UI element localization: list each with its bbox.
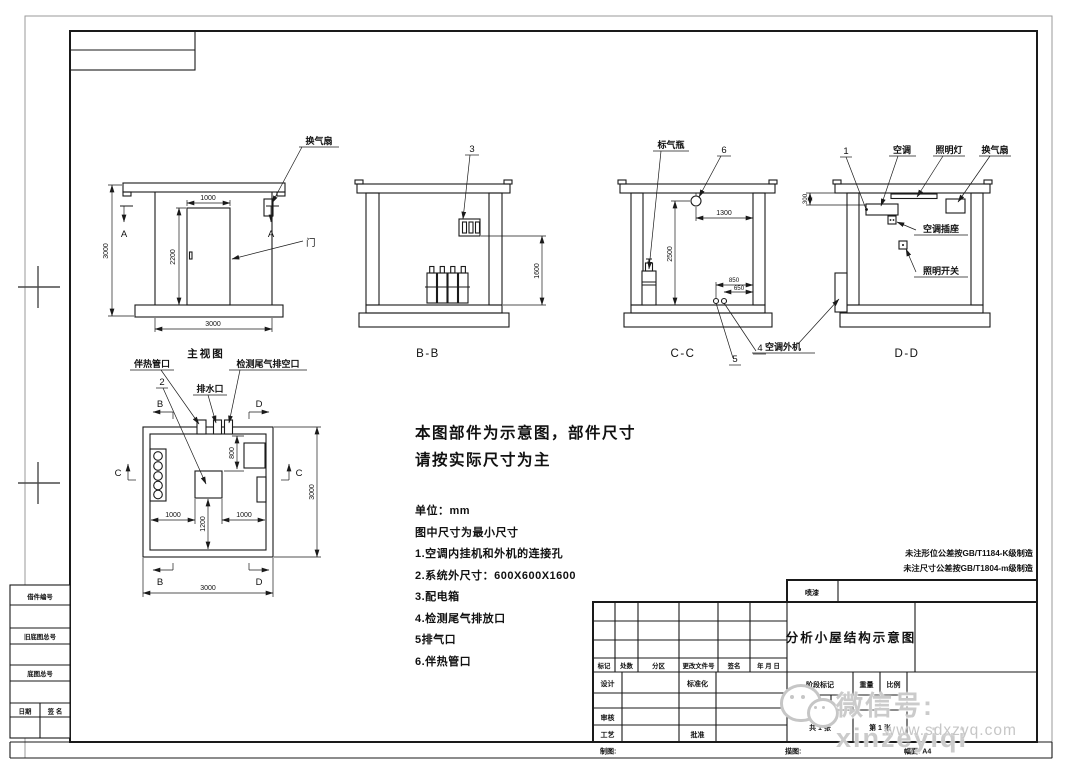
door-handle [190,252,193,259]
ac-socket [888,216,896,224]
mark-c-left: C [115,468,122,479]
door-label: 门 [306,237,316,249]
section-mark-a-left: A [121,229,128,240]
dim-1000-right: 1000 [236,512,252,519]
vent-fan [946,199,965,213]
heat-pipe-port [197,420,206,434]
floor-port [714,299,719,304]
trace-label: 描图: [785,747,801,756]
gas-cylinders [425,267,470,304]
wall-box [257,477,266,502]
dim-1600: 1600 [534,263,541,279]
audit-label: 审核 [601,713,615,722]
section-dd: 1 空调 照明灯 换气扇 300 空调插座 照明开关 空调外机 D-D [752,144,1011,360]
weight-label: 重量 [860,680,874,689]
base-no-label: 底图总号 [27,669,53,678]
exhaust-label: 检测尾气排空口 [236,358,299,369]
switch-label: 照明开关 [923,265,959,276]
note-headline-1: 本图部件为示意图，部件尺寸 [415,420,705,447]
plan-view: 伴热管口 2 排水口 检测尾气排空口 B D C C B D 800 1 [115,358,321,597]
mark-c-right: C [296,468,303,479]
format-label: 幅面: A4 [904,747,931,756]
note-item-2: 2.系统外尺寸：600X600X1600 [415,566,705,588]
drain-port [214,420,222,434]
mark-b-top: B [157,399,163,410]
borrow-no-label: 借件编号 [26,592,53,601]
dim-3000-right: 3000 [309,484,316,500]
craft-label: 工艺 [601,730,615,739]
dim-650: 650 [734,285,745,292]
approve-label: 批准 [691,730,705,739]
tolerance-line-1: 未注形位公差按GB/T1184-K级制造 [904,548,1034,558]
notes-block: 本图部件为示意图，部件尺寸 请按实际尺寸为主 单位：mm 图中尺寸为最小尺寸 1… [415,420,705,673]
dim-1300: 1300 [716,210,732,217]
outdoor-unit-label: 空调外机 [765,341,801,352]
note-item-5: 5排气口 [415,630,705,652]
scale-label: 比例 [887,680,901,689]
tolerance-line-2: 未注尺寸公差按GB/T1804-m级制造 [902,563,1033,573]
dim-800: 800 [229,447,236,459]
note-item-4: 4.检测尾气排放口 [415,609,705,631]
system-cabinet [195,471,222,498]
draft-label: 制图: [600,747,616,756]
sheet-number: 第 1 张 [869,723,892,732]
note-item-1: 1.空调内挂机和外机的连接孔 [415,544,705,566]
ceiling-port [691,196,701,206]
dim-300: 300 [802,193,809,204]
drawing-sheet: 1000 2200 3000 3000 A A 换气扇 门 主视图 [0,0,1070,766]
mark-b-bottom: B [157,577,163,588]
section-cc: 标气瓶 6 1300 2500 850 650 5 4 C-C [618,139,777,365]
dim-2500: 2500 [667,246,674,262]
callout-3: 3 [469,144,474,155]
ac-indoor-unit [866,204,898,215]
design-label: 设计 [601,679,615,688]
rev-header-sign: 签名 [727,661,741,670]
tolerance-notes: 未注形位公差按GB/T1184-K级制造 未注尺寸公差按GB/T1804-m级制… [902,548,1033,573]
heat-port-label: 伴热管口 [133,358,170,369]
front-view-label: 主视图 [187,347,225,360]
note-item-6: 6.伴热管口 [415,652,705,674]
mark-d-top: D [256,399,263,410]
note-item-3: 3.配电箱 [415,587,705,609]
section-bb: 3 1600 B-B [355,144,546,360]
section-dd-label: D-D [895,348,920,360]
fan-label: 换气扇 [305,135,332,146]
rev-header-date: 年 月 日 [757,661,780,670]
section-bb-label: B-B [416,348,440,360]
dim-3000-bottom: 3000 [200,585,216,592]
stage-mark-label: 阶段标记 [806,680,834,689]
mark-d-bottom: D [256,577,263,588]
dim-3000-left: 3000 [103,243,110,259]
dim-2200: 2200 [170,249,177,265]
lamp-label: 照明灯 [935,144,962,155]
exhaust-port [225,420,233,434]
dim-1000: 1000 [200,195,216,202]
note-unit: 单位：mm [415,501,705,523]
coating-cell: 喷漆 [805,588,819,597]
date-label: 日期 [19,707,32,716]
sheet-total: 共 1 张 [809,723,832,732]
gas-bottle-label: 标气瓶 [656,139,684,150]
callout-2: 2 [159,377,164,388]
section-mark-a-right: A [268,229,275,240]
dim-1200: 1200 [200,516,207,532]
old-base-no-label: 旧底图总号 [24,632,57,641]
dim-3000-bottom: 3000 [205,321,221,328]
sign-label: 签 名 [47,707,63,716]
callout-5: 5 [732,354,737,365]
corner-box [244,443,265,468]
ac-label: 空调 [893,144,911,155]
margin-boxes: 借件编号 旧底图总号 底图总号 日期 签 名 [10,585,70,738]
dim-850: 850 [729,277,740,284]
floor-port [722,299,727,304]
callout-1: 1 [843,146,848,157]
section-cc-label: C-C [671,348,696,360]
front-view: 1000 2200 3000 3000 A A 换气扇 门 主视图 [103,135,339,360]
callout-6: 6 [721,145,726,156]
drawing-title: 分析小屋结构示意图 [786,630,917,645]
note-min-size: 图中尺寸为最小尺寸 [415,523,705,545]
ceiling-lamp [891,194,937,199]
note-headline-2: 请按实际尺寸为主 [415,447,705,474]
socket-label: 空调插座 [923,223,959,234]
ac-outdoor-unit [835,273,847,312]
standardization-label: 标准化 [686,679,708,688]
dim-1000-left: 1000 [165,512,181,519]
fan-label: 换气扇 [981,144,1008,155]
callout-4: 4 [757,343,762,354]
door [187,208,230,305]
bottom-strip: 制图: 描图: 幅面: A4 [10,742,1052,758]
drain-label: 排水口 [196,383,223,394]
